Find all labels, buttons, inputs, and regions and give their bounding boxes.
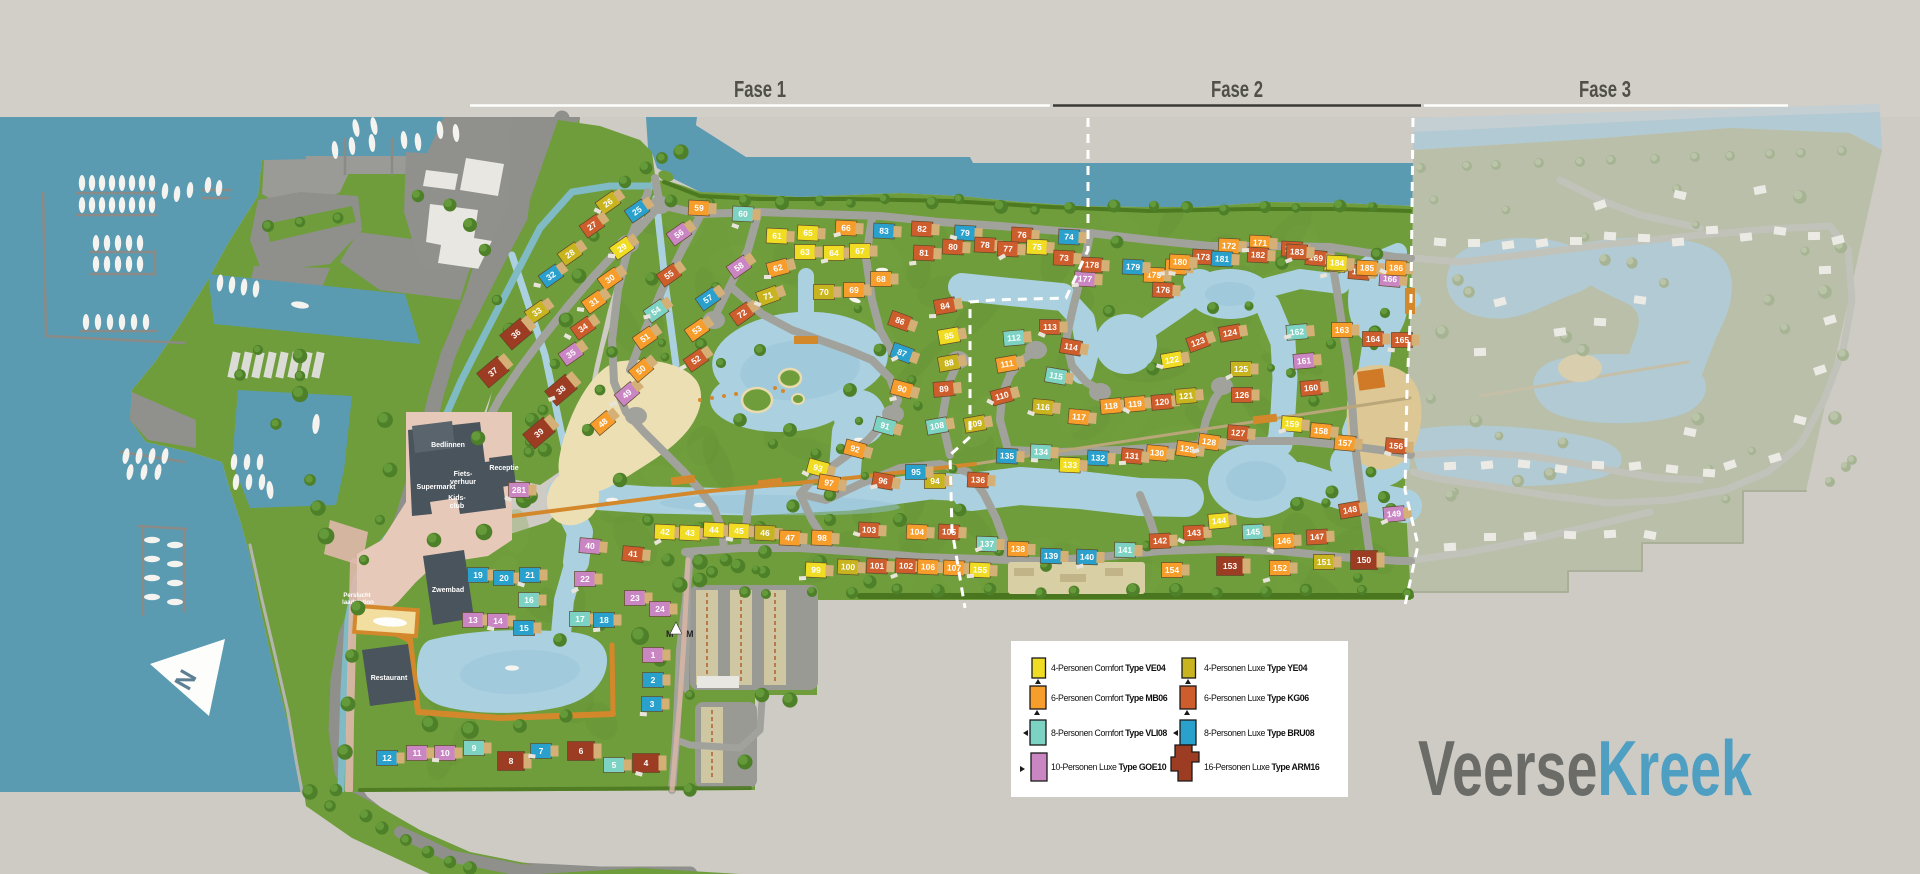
svg-text:155: 155	[973, 564, 988, 575]
svg-text:40: 40	[585, 540, 596, 551]
svg-text:14: 14	[493, 616, 503, 626]
svg-text:126: 126	[1235, 390, 1249, 400]
svg-text:157: 157	[1338, 437, 1353, 448]
svg-text:184: 184	[1330, 257, 1345, 268]
svg-text:127: 127	[1231, 427, 1246, 438]
svg-text:139: 139	[1044, 551, 1059, 561]
svg-text:47: 47	[785, 533, 795, 543]
svg-text:46: 46	[760, 528, 770, 538]
svg-text:138: 138	[1011, 544, 1026, 554]
svg-text:Receptie: Receptie	[489, 465, 518, 472]
svg-text:119: 119	[1128, 398, 1143, 409]
svg-text:6-Personen Comfort Type MB06: 6-Personen Comfort Type MB06	[1051, 693, 1168, 703]
svg-text:140: 140	[1080, 552, 1095, 562]
svg-text:160: 160	[1303, 382, 1318, 393]
svg-text:Fiets-: Fiets-	[454, 471, 473, 478]
svg-text:134: 134	[1034, 446, 1049, 457]
svg-text:79: 79	[960, 228, 970, 238]
svg-text:177: 177	[1078, 273, 1093, 284]
svg-text:21: 21	[525, 570, 535, 580]
svg-text:81: 81	[919, 248, 929, 258]
svg-text:Fase 2: Fase 2	[1211, 76, 1263, 102]
svg-text:176: 176	[1156, 284, 1171, 295]
svg-text:172: 172	[1222, 240, 1237, 251]
svg-text:8-Personen Comfort Type VLI08: 8-Personen Comfort Type VLI08	[1051, 728, 1167, 738]
svg-text:17: 17	[575, 614, 585, 624]
svg-text:152: 152	[1273, 563, 1287, 573]
svg-text:70: 70	[819, 287, 829, 297]
svg-text:116: 116	[1036, 401, 1051, 412]
svg-text:M: M	[686, 629, 694, 639]
svg-text:143: 143	[1187, 527, 1202, 538]
svg-text:104: 104	[910, 526, 925, 537]
svg-text:64: 64	[829, 248, 839, 258]
svg-text:Perslucht: Perslucht	[343, 593, 370, 599]
svg-text:164: 164	[1366, 334, 1380, 344]
svg-text:125: 125	[1234, 364, 1248, 374]
svg-text:18: 18	[599, 615, 609, 625]
svg-text:181: 181	[1215, 253, 1230, 264]
svg-text:100: 100	[841, 561, 856, 572]
svg-text:145: 145	[1246, 526, 1261, 537]
svg-text:45: 45	[734, 526, 744, 536]
svg-text:6-Personen Luxe Type KG06: 6-Personen Luxe Type KG06	[1204, 693, 1309, 703]
svg-text:173: 173	[1196, 251, 1211, 262]
svg-text:150: 150	[1357, 555, 1371, 565]
svg-text:132: 132	[1091, 452, 1106, 463]
svg-text:73: 73	[1059, 253, 1069, 263]
svg-text:281: 281	[512, 485, 526, 495]
svg-text:179: 179	[1126, 261, 1141, 272]
svg-text:131: 131	[1125, 450, 1140, 461]
svg-text:12: 12	[382, 753, 392, 763]
svg-text:67: 67	[855, 246, 865, 256]
svg-text:74: 74	[1064, 232, 1074, 242]
svg-text:42: 42	[660, 527, 670, 537]
svg-text:13: 13	[468, 615, 478, 625]
svg-text:78: 78	[980, 240, 990, 250]
svg-text:154: 154	[1165, 565, 1179, 575]
svg-text:19: 19	[473, 570, 483, 580]
svg-text:15: 15	[519, 623, 529, 633]
svg-text:113: 113	[1043, 322, 1057, 332]
svg-text:65: 65	[803, 228, 813, 238]
svg-text:82: 82	[917, 224, 927, 234]
svg-text:2: 2	[651, 675, 656, 685]
svg-text:153: 153	[1223, 561, 1237, 571]
svg-text:136: 136	[971, 474, 986, 485]
svg-text:85: 85	[943, 330, 954, 342]
svg-text:4: 4	[644, 758, 649, 768]
svg-text:158: 158	[1314, 425, 1329, 436]
svg-text:141: 141	[1118, 545, 1133, 555]
svg-text:6: 6	[579, 746, 584, 756]
svg-text:VeerseKreek: VeerseKreek	[1418, 724, 1752, 812]
svg-text:88: 88	[943, 357, 954, 369]
svg-text:178: 178	[1085, 259, 1100, 270]
svg-text:8-Personen Luxe Type BRU08: 8-Personen Luxe Type BRU08	[1204, 728, 1315, 738]
svg-text:60: 60	[738, 209, 748, 219]
svg-text:Fase 1: Fase 1	[734, 76, 786, 102]
svg-text:23: 23	[630, 593, 640, 603]
svg-text:63: 63	[800, 247, 810, 257]
svg-text:95: 95	[911, 467, 921, 477]
svg-text:118: 118	[1104, 400, 1119, 411]
svg-text:112: 112	[1007, 332, 1022, 343]
svg-text:Kids-: Kids-	[448, 495, 466, 502]
svg-text:149: 149	[1386, 508, 1401, 519]
svg-text:186: 186	[1389, 262, 1404, 273]
svg-text:120: 120	[1154, 396, 1169, 407]
svg-text:verhuur: verhuur	[450, 479, 476, 486]
svg-text:Restaurant: Restaurant	[371, 675, 408, 682]
svg-text:16-Personen Luxe Type ARM16: 16-Personen Luxe Type ARM16	[1204, 762, 1320, 772]
svg-text:163: 163	[1335, 325, 1349, 335]
svg-text:4-Personen Luxe Type YE04: 4-Personen Luxe Type YE04	[1204, 663, 1308, 673]
svg-text:4-Personen Comfort Type VE04: 4-Personen Comfort Type VE04	[1051, 663, 1166, 673]
svg-text:101: 101	[870, 560, 885, 571]
svg-text:171: 171	[1253, 237, 1268, 248]
svg-text:Zwembad: Zwembad	[432, 587, 464, 594]
svg-text:41: 41	[628, 548, 639, 559]
svg-text:16: 16	[524, 595, 534, 605]
svg-text:7: 7	[539, 746, 544, 756]
svg-text:5: 5	[612, 760, 617, 770]
svg-text:151: 151	[1317, 557, 1331, 567]
svg-text:97: 97	[824, 477, 835, 489]
svg-text:180: 180	[1173, 256, 1188, 267]
svg-text:77: 77	[1003, 244, 1013, 254]
svg-text:144: 144	[1211, 515, 1226, 526]
svg-text:66: 66	[841, 223, 851, 233]
svg-text:1: 1	[651, 650, 656, 660]
svg-text:121: 121	[1178, 390, 1193, 401]
svg-text:11: 11	[413, 748, 422, 758]
svg-text:20: 20	[499, 573, 509, 583]
svg-text:96: 96	[878, 475, 889, 487]
svg-text:68: 68	[876, 274, 886, 284]
svg-text:142: 142	[1153, 535, 1168, 546]
svg-text:98: 98	[817, 533, 827, 543]
svg-text:3: 3	[650, 699, 655, 709]
svg-text:44: 44	[709, 525, 719, 535]
svg-text:130: 130	[1150, 447, 1165, 458]
svg-text:156: 156	[1389, 440, 1404, 451]
svg-text:182: 182	[1251, 249, 1266, 260]
svg-text:8: 8	[509, 756, 514, 766]
svg-text:75: 75	[1032, 242, 1042, 252]
svg-text:106: 106	[921, 561, 936, 572]
svg-text:61: 61	[772, 231, 782, 241]
svg-text:137: 137	[980, 539, 995, 549]
svg-text:9: 9	[472, 743, 477, 753]
svg-text:89: 89	[939, 383, 950, 394]
svg-text:43: 43	[685, 528, 695, 538]
svg-text:185: 185	[1360, 262, 1375, 273]
svg-text:135: 135	[1000, 450, 1015, 461]
svg-text:102: 102	[899, 560, 914, 571]
svg-text:99: 99	[811, 565, 821, 575]
svg-text:165: 165	[1395, 335, 1409, 345]
svg-text:83: 83	[879, 226, 889, 236]
svg-text:Bedlinnen: Bedlinnen	[431, 442, 465, 449]
svg-text:147: 147	[1310, 531, 1325, 542]
svg-text:80: 80	[948, 242, 958, 252]
svg-text:162: 162	[1289, 326, 1304, 337]
svg-text:club: club	[450, 503, 464, 510]
svg-text:105: 105	[942, 526, 957, 537]
svg-text:117: 117	[1072, 411, 1087, 422]
svg-text:24: 24	[655, 604, 665, 614]
svg-text:103: 103	[862, 524, 877, 535]
svg-text:22: 22	[580, 574, 590, 584]
svg-text:76: 76	[1017, 230, 1027, 240]
svg-text:10-Personen Luxe Type GOE10: 10-Personen Luxe Type GOE10	[1051, 762, 1167, 772]
svg-text:84: 84	[939, 300, 950, 312]
svg-text:Fase 3: Fase 3	[1579, 76, 1631, 102]
svg-text:146: 146	[1277, 535, 1292, 546]
svg-text:69: 69	[849, 285, 859, 295]
svg-text:159: 159	[1285, 418, 1300, 429]
svg-text:59: 59	[694, 203, 704, 213]
svg-text:133: 133	[1063, 459, 1078, 470]
svg-text:161: 161	[1296, 355, 1311, 366]
svg-text:183: 183	[1290, 246, 1305, 257]
svg-text:10: 10	[440, 748, 450, 758]
